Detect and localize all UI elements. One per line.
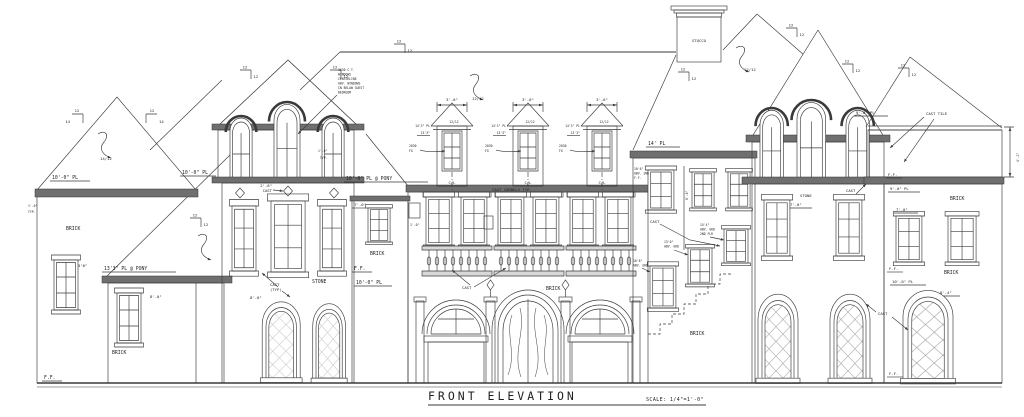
pitch-marker-14-12-right: 12 14: [146, 108, 164, 124]
dim-8-0: 8'-0": [150, 294, 162, 299]
svg-text:ABV. 2ND: ABV. 2ND: [634, 172, 649, 176]
title-block: FRONT ELEVATION SCALE: 1/4"=1'-0": [428, 389, 706, 405]
plate-label-10-0: 10'-0" PL: [892, 279, 914, 284]
dim-4-2-vertical: 4'-2": [1016, 153, 1020, 162]
dim-1-0: 1'-0": [318, 149, 327, 153]
drawing-sheet: 12 12 3'-0" 12/12 14'3" PL 13'3" 2030 FG…: [0, 0, 1024, 417]
main-center-block: 7'-0" BRICK F.F. 10'-0" PL @ PONY CAST C…: [300, 39, 676, 384]
pitch-marker-14-12-left: 12 14: [65, 108, 83, 124]
dim-8-0: 8'-0": [250, 295, 262, 300]
svg-text:ABV. GRD: ABV. GRD: [664, 245, 679, 249]
balcony-window-group-3: [566, 192, 636, 276]
svg-text:10'8": 10'8": [633, 259, 642, 263]
svg-text:3630 C.T.: 3630 C.T.: [338, 68, 355, 72]
level-label-ff: F.F.: [889, 371, 898, 376]
material-label-brick: BRICK: [112, 350, 127, 356]
note-abv-10-6: 10'6" ABV. 2ND F.F.: [634, 167, 649, 180]
material-label-cast: CAST: [846, 188, 856, 193]
plate-label-pony-13-3: 13'3" PL @ PONY: [104, 266, 147, 272]
svg-text:13'0": 13'0": [664, 240, 673, 244]
material-label-cast: CAST: [650, 219, 660, 224]
svg-text:15'4": 15'4": [700, 223, 709, 227]
plate-label-10-0: 10'-0" PL: [356, 280, 382, 286]
svg-text:WINDOWS: WINDOWS: [338, 73, 351, 77]
pitch-ratio-14-12: 14/12: [100, 156, 112, 161]
svg-text:ABV. WINDOWS: ABV. WINDOWS: [338, 82, 360, 86]
dim-typ: TYP.: [28, 210, 36, 214]
svg-text:ABV. GRD: ABV. GRD: [700, 228, 715, 232]
svg-text:CENTERLINE: CENTERLINE: [338, 77, 357, 81]
dim-typ: TYP.: [320, 156, 328, 160]
dim-8-0-vertical: 8'-0": [685, 191, 689, 200]
material-label-cast-typ: (TYP): [270, 287, 282, 292]
plate-label-pony-10-0: 10'-0" PL @ PONY: [346, 176, 392, 182]
lantern-icon: [487, 280, 494, 297]
dim-1-0: 1'-0": [410, 223, 419, 227]
right-gable-roof: 12/12: [678, 14, 812, 81]
front-elevation-drawing: 12 12 3'-0" 12/12 14'3" PL 13'3" 2030 FG…: [0, 0, 1024, 417]
material-label-brick: BRICK: [950, 196, 965, 202]
entry-arch-left-window: [422, 300, 490, 383]
svg-text:14: 14: [65, 119, 70, 124]
note-abv-10-8: 10'8" ABV. GRD: [633, 259, 650, 272]
material-label-cast: CAST: [263, 188, 273, 193]
plate-label-14: 14' PL: [648, 141, 665, 147]
material-label-brick: BRICK: [370, 251, 385, 257]
material-label-brick: BRICK: [546, 286, 561, 292]
level-label-ff: F.F.: [44, 375, 56, 381]
dim-8-4: 8'-4": [940, 290, 952, 295]
pitch-ratio-12-12: 12/12: [744, 67, 756, 72]
dim-7-0: 7'-0": [354, 202, 366, 207]
level-label-ff: F.F.: [354, 266, 366, 272]
material-label-stone: STONE: [800, 193, 812, 198]
level-label-ff: F.F.: [888, 172, 897, 177]
note-abv-15-4: 15'4" ABV. GRD 2ND FLR: [700, 223, 724, 240]
dim-7-0: 7'-0": [790, 202, 802, 207]
material-label-cast: CAST: [462, 285, 472, 290]
material-label-cast: CAST: [878, 311, 888, 316]
material-label-brick: BRICK: [944, 270, 959, 276]
chimney: STUCCO: [671, 6, 727, 62]
svg-text:12: 12: [150, 108, 155, 113]
right-turret: STONE CAST 7'-0" 9'-0" PL: [742, 30, 892, 383]
svg-text:14: 14: [159, 119, 164, 124]
svg-text:2ND FLR: 2ND FLR: [700, 232, 713, 236]
material-label-stone: STONE: [312, 279, 327, 285]
dim-1-0: 1'-0": [28, 204, 37, 208]
drawing-title: FRONT ELEVATION: [428, 389, 577, 403]
note-cast-corbels: CAST CORBELS TYP.: [492, 187, 532, 192]
svg-text:F.F.: F.F.: [634, 176, 642, 180]
svg-text:IN BELOW GUEST: IN BELOW GUEST: [338, 86, 364, 90]
entry-double-door: [492, 290, 564, 383]
balcony-window-group-2: [494, 192, 564, 276]
pitch-ratio-12-12: 12/12: [472, 96, 484, 101]
svg-text:10'6": 10'6": [634, 167, 643, 171]
svg-text:12: 12: [75, 108, 80, 113]
material-label-brick: BRICK: [66, 226, 81, 232]
elevation-linework: BRICK F.F. 1'-0" TYP. 10'-0" PL 3'6" 12 …: [28, 6, 1020, 405]
material-label-brick: BRICK: [690, 331, 705, 337]
svg-text:BEDROOM: BEDROOM: [338, 91, 351, 95]
stair-hall-wing: 14' PL 10'6" ABV. 2ND F.F. 8'-0" 15'4" A…: [630, 141, 757, 383]
plate-label-9-0: 9'-0" PL: [856, 110, 875, 115]
material-label-stucco: STUCCO: [692, 38, 707, 43]
svg-text:ABV. GRD: ABV. GRD: [633, 264, 648, 268]
note-abv-13-0: 13'0" ABV. GRD: [664, 240, 688, 255]
material-label-cast-tile: CAST TILE: [926, 111, 948, 116]
lantern-icon: [562, 280, 569, 297]
far-right-wing: CAST TILE F.F. 9'-0" PL BRICK 7'-0" F.F.…: [864, 57, 1020, 384]
drawing-scale: SCALE: 1/4"=1'-0": [646, 397, 704, 403]
plate-label-10-0: 10'-0" PL: [52, 175, 78, 181]
plate-label-10-0: 10'-0" PL: [182, 170, 208, 176]
plate-label-9-0: 9'-0" PL: [890, 186, 909, 191]
entry-arch-right-window: [566, 300, 634, 383]
balcony-window-group-1: [422, 192, 492, 276]
grade-line: [37, 383, 1002, 387]
dim-3-6: 3'6": [78, 263, 87, 268]
level-label-ff: F.F.: [889, 266, 898, 271]
